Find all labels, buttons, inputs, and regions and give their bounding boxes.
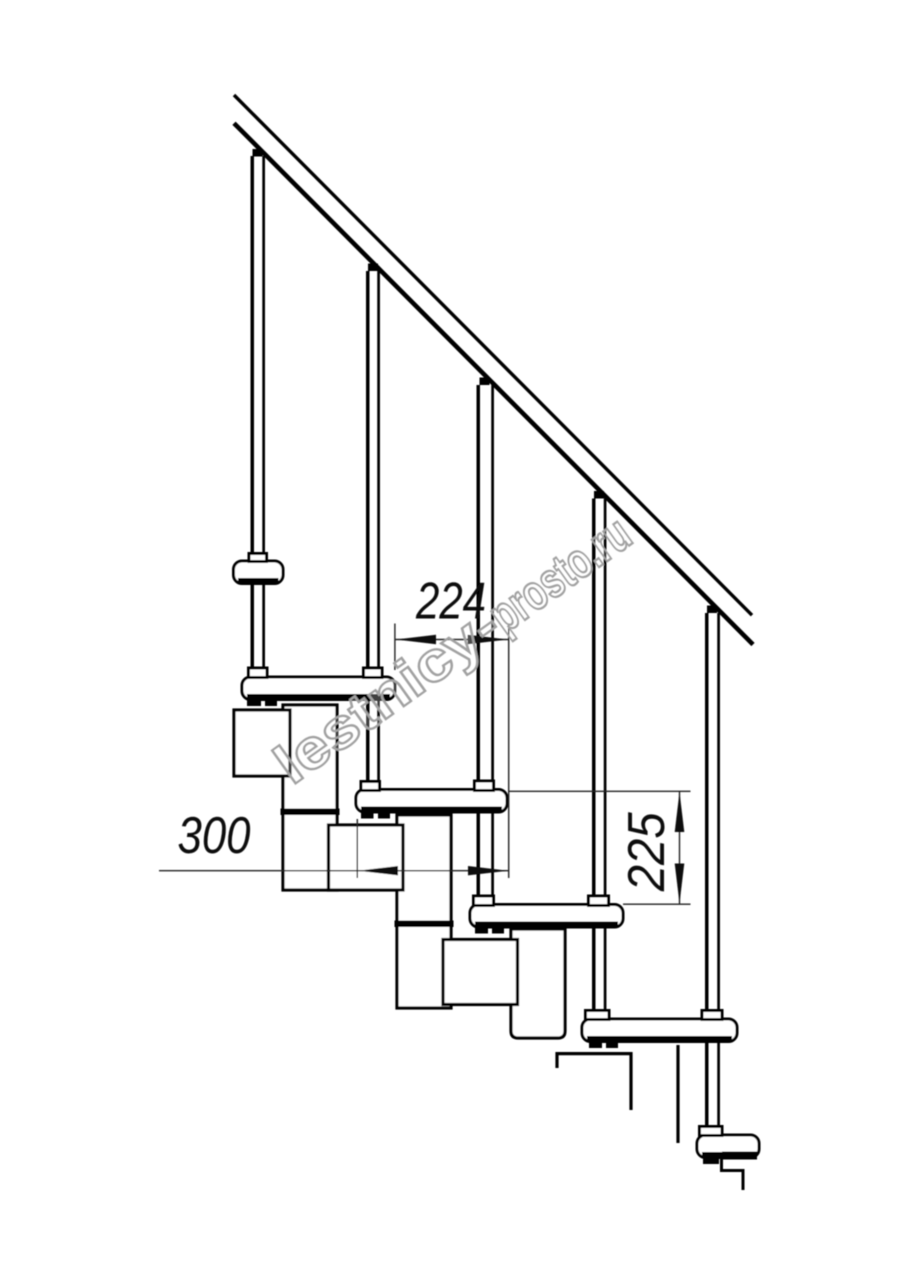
svg-text:225: 225 bbox=[618, 811, 676, 892]
svg-text:300: 300 bbox=[178, 807, 251, 865]
